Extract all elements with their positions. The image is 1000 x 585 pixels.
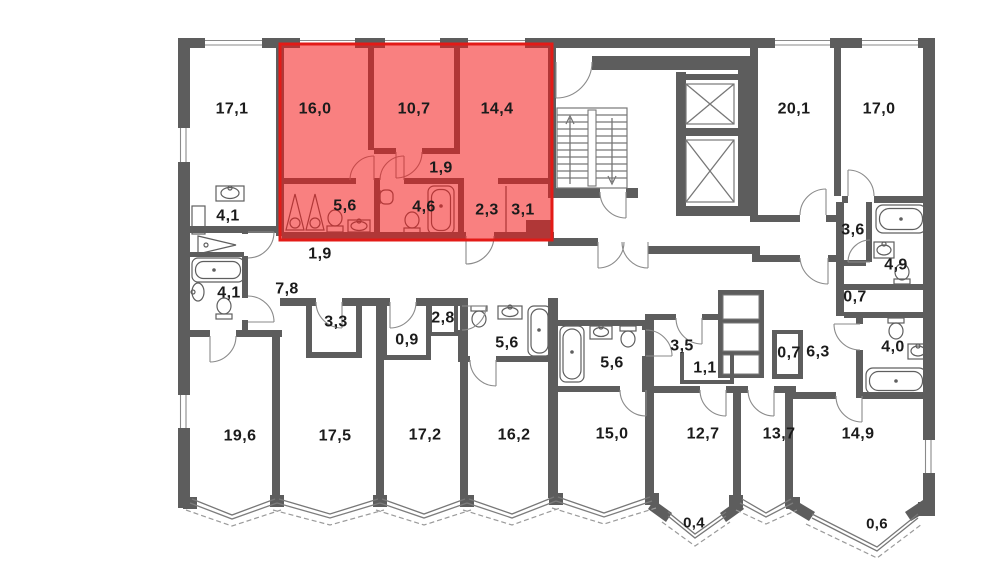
room-area-label: 12,7 [687,426,720,443]
stairs-icon [557,108,627,188]
room-area-label: 13,7 [763,426,796,443]
elevator-shaft-icon [686,84,734,124]
balcony-0-6 [806,514,922,558]
room-area-label: 2,8 [431,310,454,327]
sink-icon [498,305,522,319]
door-arc [600,192,626,218]
window-icon [178,128,190,162]
room-area-label: 17,0 [863,101,896,118]
shower-icon [198,236,236,254]
bathtub-icon [866,368,926,394]
window-icon [178,395,190,428]
room-area-label: 4,9 [884,257,907,274]
highlighted-room-area-label: 16,0 [299,101,332,118]
highlighted-room-area-label: 4,6 [412,199,435,216]
room-area-label: 0,9 [395,332,418,349]
highlighted-room-area-label: 3,1 [511,202,534,219]
bathtub-icon [528,306,551,356]
highlighted-room-area-label: 10,7 [398,101,431,118]
window-icon [205,38,262,48]
door-arc [470,360,496,386]
door-arc [248,296,274,322]
room-area-label: 3,5 [670,338,693,355]
highlighted-room-area-label: 5,6 [333,198,356,215]
door-arc [834,324,860,350]
window-icon [923,440,935,473]
door-arc [390,302,416,328]
door-arc [556,62,592,98]
door-arc [800,189,826,215]
room-area-label: 5,6 [600,355,623,372]
toilet-icon [620,326,636,347]
room-area-label: 7,8 [275,281,298,298]
bathtub-icon [876,205,926,233]
room-area-label: 0,7 [843,289,866,306]
room-area-label: 14,9 [842,426,875,443]
door-arc [848,170,874,196]
double-door-arc [598,242,648,268]
room-area-label: 15,0 [596,426,629,443]
bathtub-icon [560,326,584,382]
floor-plan: 16,010,714,41,95,64,62,33,117,120,117,04… [0,0,1000,585]
sink-icon [590,325,612,339]
bathtub-icon [192,258,244,282]
elevator-shaft-icon [686,140,734,202]
door-arc [748,390,774,416]
room-area-label: 20,1 [778,101,811,118]
balcony-area-label: 0,4 [683,515,705,532]
highlighted-room-area-label: 1,9 [429,160,452,177]
room-area-label: 1,1 [693,360,716,377]
room-area-label: 5,6 [495,335,518,352]
sink-icon [191,283,204,301]
room-area-label: 4,1 [216,208,239,225]
room-area-label: 17,1 [216,101,249,118]
room-area-label: 0,7 [777,345,800,362]
door-arc [800,258,828,284]
door-arc [620,390,646,416]
floor-plan-page: 16,010,714,41,95,64,62,33,117,120,117,04… [0,0,1000,585]
room-area-label: 4,0 [881,339,904,356]
room-area-label: 16,2 [498,427,531,444]
room-area-label: 6,3 [806,344,829,361]
sink-icon [216,186,244,201]
room-area-label: 4,1 [217,285,240,302]
elevators [686,84,734,202]
room-area-label: 3,3 [324,314,347,331]
highlighted-room-area-label: 14,4 [481,101,514,118]
room-area-label: 3,6 [841,222,864,239]
room-area-label: 17,5 [319,428,352,445]
window-icon [862,38,918,48]
window-icon [775,38,830,48]
room-area-label: 17,2 [409,427,442,444]
door-arc [700,390,726,416]
door-arc [210,336,236,362]
toilet-icon [888,318,904,339]
door-arc [836,396,862,422]
room-area-label: 19,6 [224,428,257,445]
room-area-label: 1,9 [308,246,331,263]
toilet-icon [471,306,487,327]
highlighted-room-area-label: 2,3 [475,202,498,219]
door-arc [248,232,274,258]
balcony-area-label: 0,6 [866,516,888,533]
